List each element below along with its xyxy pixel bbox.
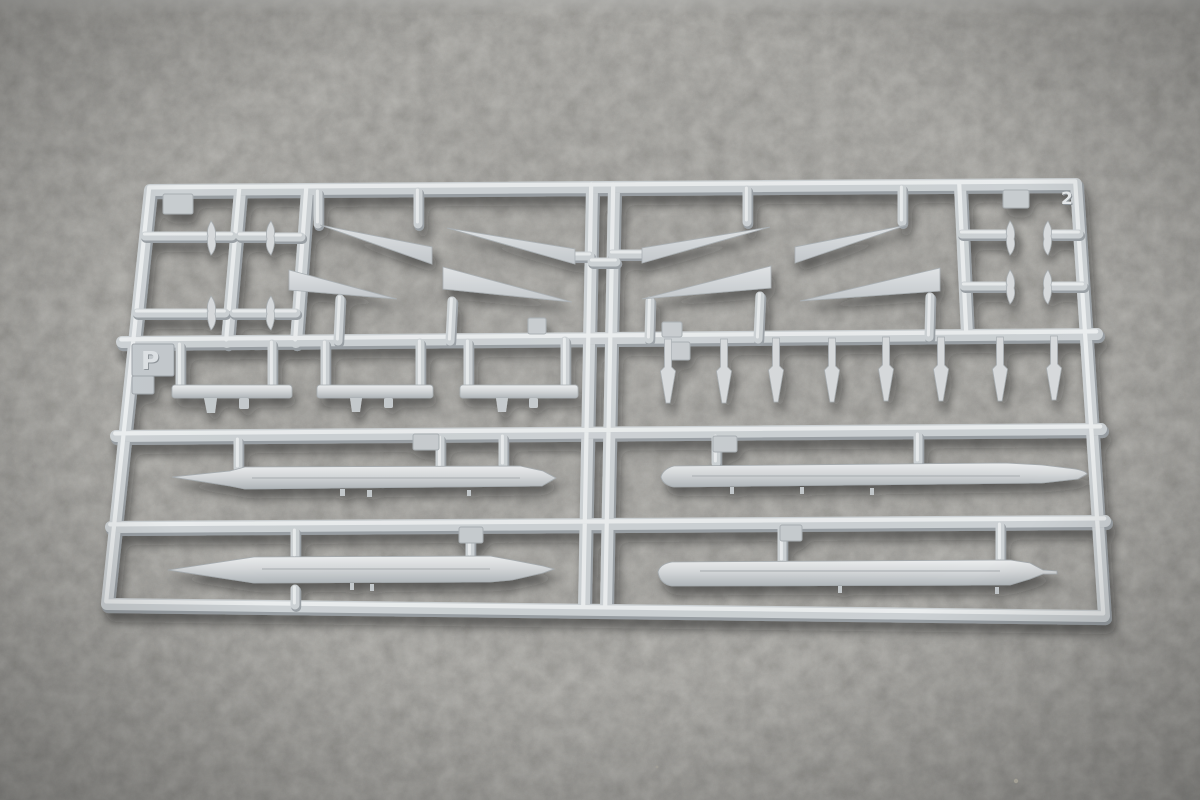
- vignette: [0, 0, 1200, 800]
- photo-of-sprue: P P 2 2: [0, 0, 1200, 800]
